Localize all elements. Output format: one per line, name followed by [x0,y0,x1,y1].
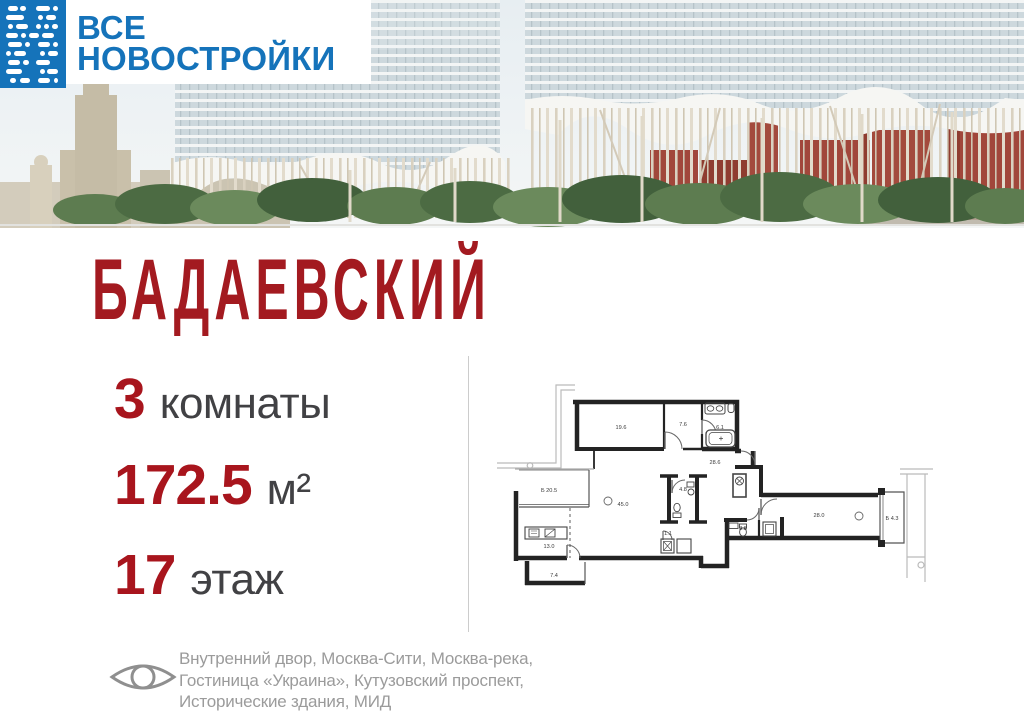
stat-area: 172.5 м² [114,452,311,518]
stat-floor-label: этаж [190,555,283,605]
room-label: 7.4 [550,573,558,579]
stat-floor-value: 17 [114,542,175,608]
stat-rooms-label: комнаты [160,379,331,429]
room-label: 45.0 [618,502,629,508]
room-label: Б 4.3 [885,516,898,522]
room-label: 3.8 [739,526,747,532]
views-line: Гостиница «Украина», Кутузовский проспек… [179,670,533,692]
room-label: 13.0 [544,544,555,550]
stat-rooms-value: 3 [114,366,145,432]
kitchen-island-icon [525,527,567,539]
double-sink-icon [705,403,734,414]
room-label: 1.1 [664,531,672,537]
views-description: Внутренний двор, Москва-Сити, Москва-рек… [179,648,533,713]
wall-stub [878,540,885,547]
right-railing-outline [900,469,933,582]
room-label: 4.8 [679,487,687,493]
room-label: 6.1 [716,425,724,431]
room-label: 28.6 [710,460,721,466]
eye-icon [108,653,178,701]
bathtub-icon [706,430,735,447]
project-title: БАДАЕВСКИЙ [92,247,491,333]
shaft-icon [733,474,746,497]
room-label: 28.0 [814,513,825,519]
closet-icon [763,522,776,536]
room-label: Б 20.5 [541,488,557,494]
room-label: 19.6 [616,425,627,431]
neighbour-outline [497,385,575,468]
views-line: Исторические здания, МИД [179,691,533,713]
photo-bottom-edge [0,224,1024,226]
washer-icon [661,539,691,553]
brand-logo-text: ВСЕ НОВОСТРОЙКИ [66,0,371,84]
stat-floor: 17 этаж [114,542,283,608]
floor-plan: 19.67.66.128.6Б 20.545.04.813.07.41.13.8… [497,372,933,598]
stat-area-value: 172.5 [114,452,252,518]
brand-logo-mark-icon [0,0,66,88]
listing-card: ВСЕ НОВОСТРОЙКИ БАДАЕВСКИЙ 3 комнаты 172… [0,0,1024,725]
stat-area-label: м² [267,465,311,515]
stat-rooms: 3 комнаты [114,366,330,432]
vertical-divider [468,356,469,632]
brand-name-line2: НОВОСТРОЙКИ [77,43,371,74]
wall-stub [878,488,885,495]
views-line: Внутренний двор, Москва-Сити, Москва-рек… [179,648,533,670]
room-label: 7.6 [679,422,687,428]
brand-name-line1: ВСЕ [77,12,371,43]
